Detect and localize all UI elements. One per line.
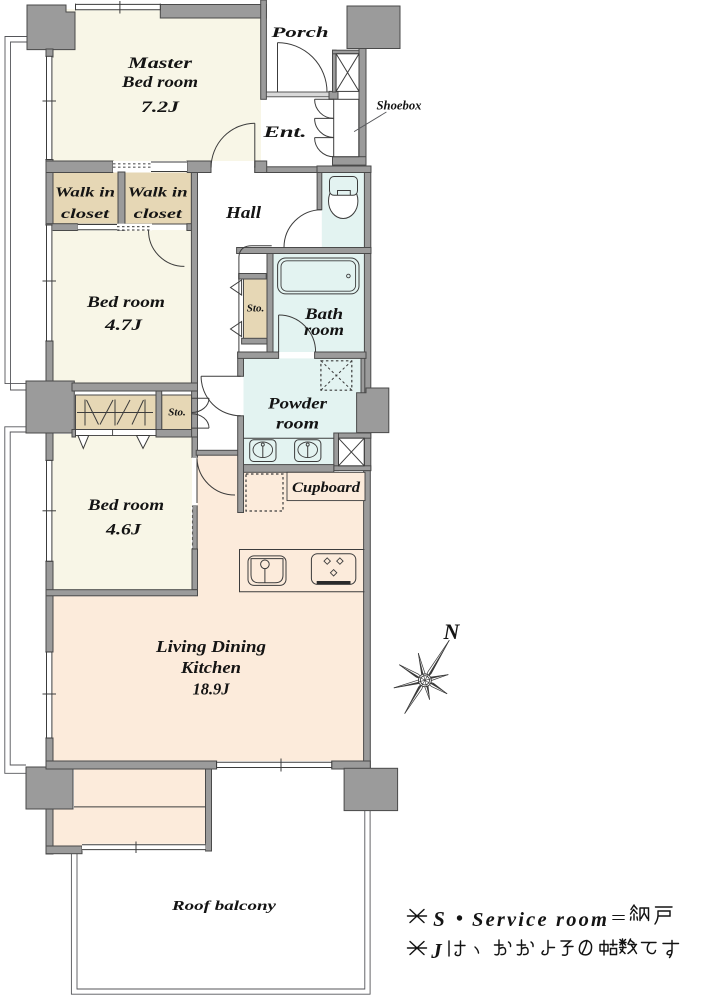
svg-text:Powder: Powder <box>267 396 328 413</box>
svg-text:Bed room: Bed room <box>87 497 164 514</box>
svg-text:Master: Master <box>127 55 193 72</box>
svg-text:Walk in: Walk in <box>128 186 188 201</box>
svg-text:Kitchen: Kitchen <box>180 658 241 677</box>
svg-text:Shoebox: Shoebox <box>377 99 422 113</box>
svg-text:Bed room: Bed room <box>86 294 165 311</box>
svg-text:closet: closet <box>134 207 184 222</box>
svg-text:closet: closet <box>61 207 111 222</box>
svg-text:Roof balcony: Roof balcony <box>171 898 278 913</box>
svg-text:Service room: Service room <box>472 909 607 931</box>
svg-text:Walk in: Walk in <box>55 186 115 201</box>
svg-text:Hall: Hall <box>225 203 261 222</box>
svg-text:room: room <box>304 322 344 339</box>
svg-text:Bath: Bath <box>304 306 343 323</box>
svg-text:Bed room: Bed room <box>121 74 198 91</box>
svg-text:4.6J: 4.6J <box>105 522 143 539</box>
svg-text:7.2J: 7.2J <box>141 99 180 116</box>
svg-text:Sto.: Sto. <box>168 407 185 419</box>
svg-text:S: S <box>433 907 445 931</box>
svg-text:Ent.: Ent. <box>262 124 307 141</box>
svg-text:=: = <box>611 908 626 930</box>
svg-text:Living Dining: Living Dining <box>155 637 267 656</box>
svg-text:N: N <box>443 619 461 644</box>
svg-text:4.7J: 4.7J <box>104 317 144 334</box>
svg-text:18.9J: 18.9J <box>193 680 230 699</box>
svg-text:Sto.: Sto. <box>247 303 264 315</box>
svg-text:Cupboard: Cupboard <box>292 480 361 496</box>
svg-text:room: room <box>276 416 319 433</box>
svg-text:Porch: Porch <box>272 25 329 41</box>
svg-text:J: J <box>430 939 443 963</box>
